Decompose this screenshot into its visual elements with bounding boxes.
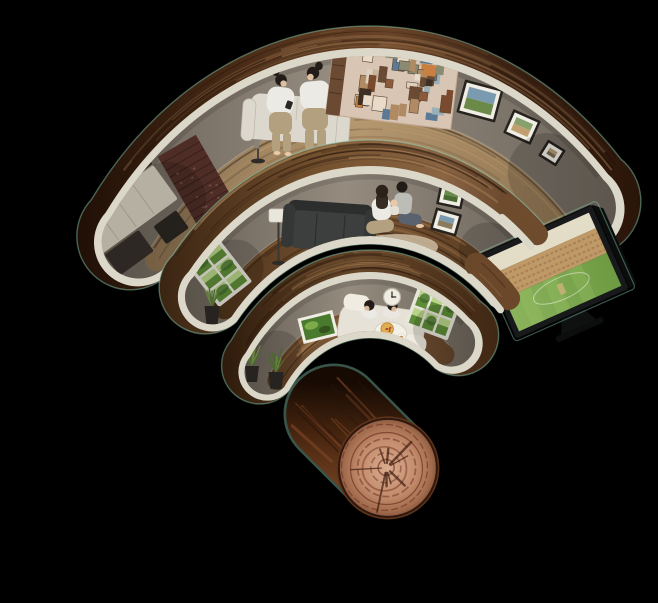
wifi-home-illustration — [0, 0, 658, 603]
wall-clock — [384, 289, 401, 306]
wifi-home-scene — [0, 0, 658, 603]
